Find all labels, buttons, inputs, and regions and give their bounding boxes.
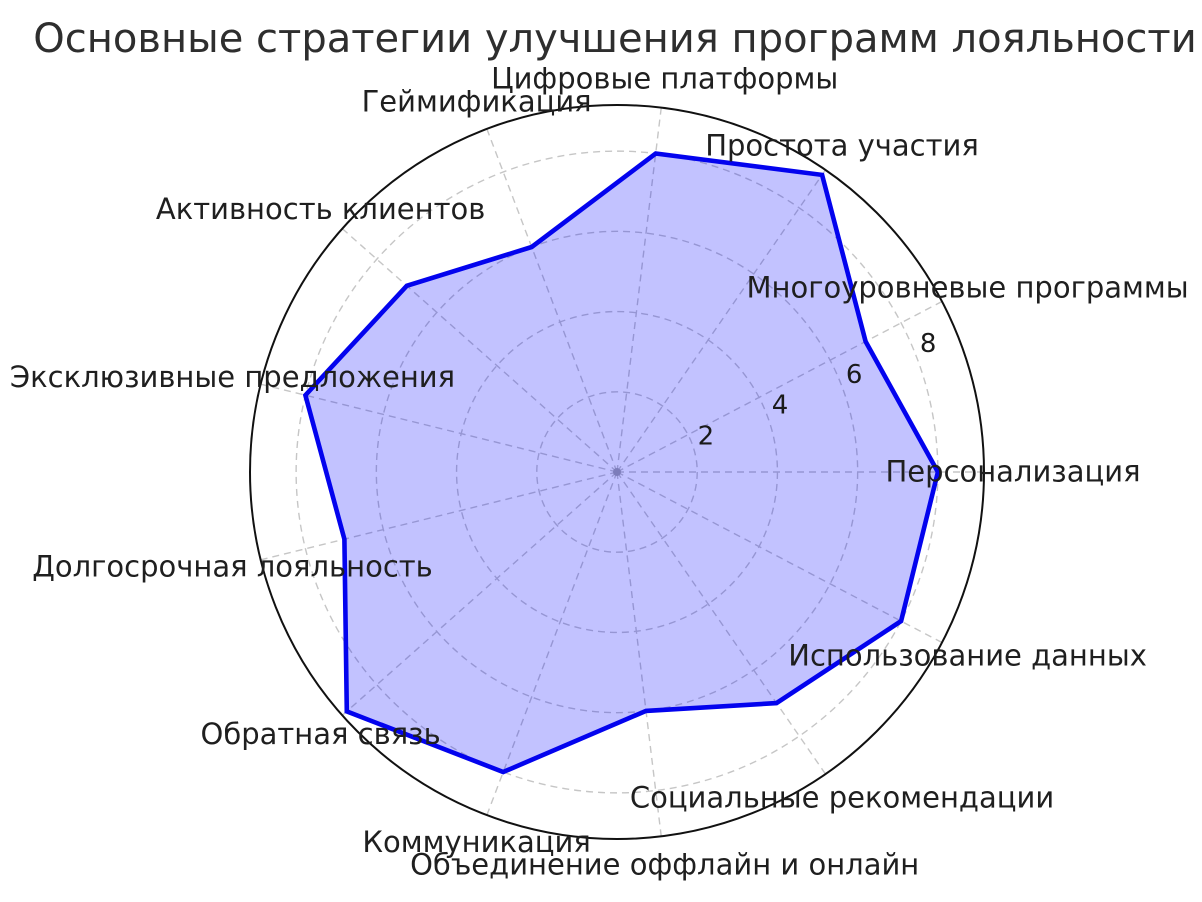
category-label-10: Объединение оффлайн и онлайн: [410, 848, 919, 882]
radial-tick-label-8: 8: [920, 329, 937, 359]
category-label-4: Геймификация: [362, 84, 592, 118]
category-label-1: Многоуровневые программы: [747, 271, 1189, 305]
category-label-2: Простота участия: [705, 129, 979, 163]
chart-title: Основные стратегии улучшения программ ло…: [33, 16, 1196, 62]
radar-chart-figure: Основные стратегии улучшения программ ло…: [0, 0, 1202, 902]
category-label-7: Долгосрочная лояльность: [32, 549, 433, 583]
radial-tick-label-2: 2: [698, 421, 715, 451]
category-label-11: Социальные рекомендации: [630, 780, 1054, 814]
radial-tick-label-6: 6: [846, 360, 863, 390]
category-label-6: Эксклюзивные предложения: [10, 360, 455, 394]
radial-tick-label-4: 4: [772, 391, 789, 421]
category-label-5: Активность клиентов: [156, 192, 485, 226]
category-label-12: Использование данных: [788, 639, 1147, 673]
category-label-8: Обратная связь: [201, 717, 441, 751]
data-series-polygon: [305, 154, 938, 773]
radar-chart: Основные стратегии улучшения программ ло…: [0, 0, 1202, 902]
category-label-0: Персонализация: [885, 455, 1140, 489]
